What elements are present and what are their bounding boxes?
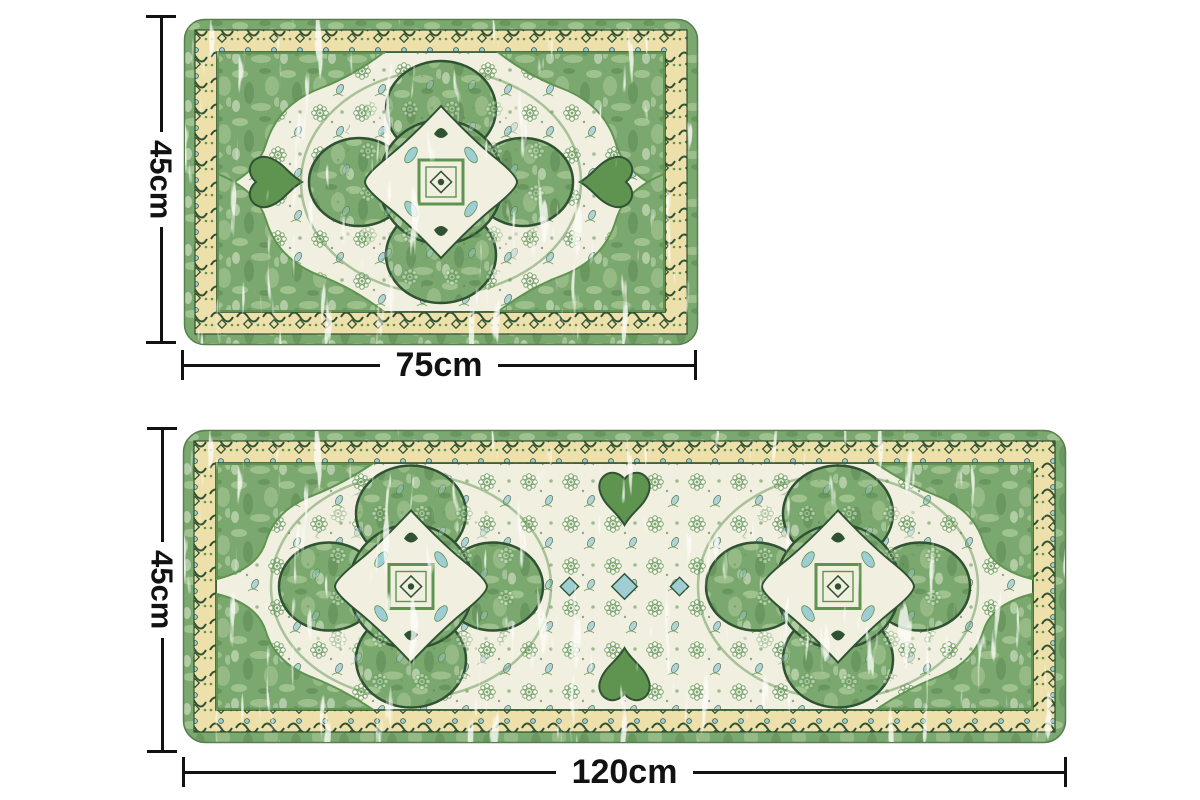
small-mat-image (183, 18, 699, 346)
runner-mat-rug (182, 429, 1067, 744)
dimension-cap (146, 341, 176, 344)
small-mat-width-dimension: 75cm (181, 350, 697, 380)
runner-mat-height-dimension: 45cm (147, 427, 177, 753)
rug-distress-overlay (185, 20, 697, 344)
runner-mat-height-label: 45cm (147, 542, 178, 637)
dimension-cap (694, 350, 697, 380)
dimension-line (160, 18, 163, 132)
dimension-line (184, 364, 380, 367)
runner-mat-width-label: 120cm (556, 755, 694, 789)
dimension-line (161, 638, 164, 750)
dimension-line (161, 430, 164, 542)
dimension-line (498, 364, 694, 367)
small-mat-width-label: 75cm (380, 348, 499, 382)
small-mat-height-label: 45cm (146, 132, 177, 227)
dimension-cap (147, 750, 177, 753)
rug-distress-overlay (184, 431, 1065, 742)
runner-mat-width-dimension: 120cm (182, 757, 1067, 787)
small-mat-rug (183, 18, 699, 346)
product-size-diagram: 45cm 75cm (0, 0, 1200, 800)
dimension-line (160, 227, 163, 341)
dimension-line (693, 771, 1064, 774)
small-mat-height-dimension: 45cm (146, 15, 176, 344)
dimension-cap (1064, 757, 1067, 787)
runner-mat-image (182, 429, 1067, 744)
dimension-line (185, 771, 556, 774)
